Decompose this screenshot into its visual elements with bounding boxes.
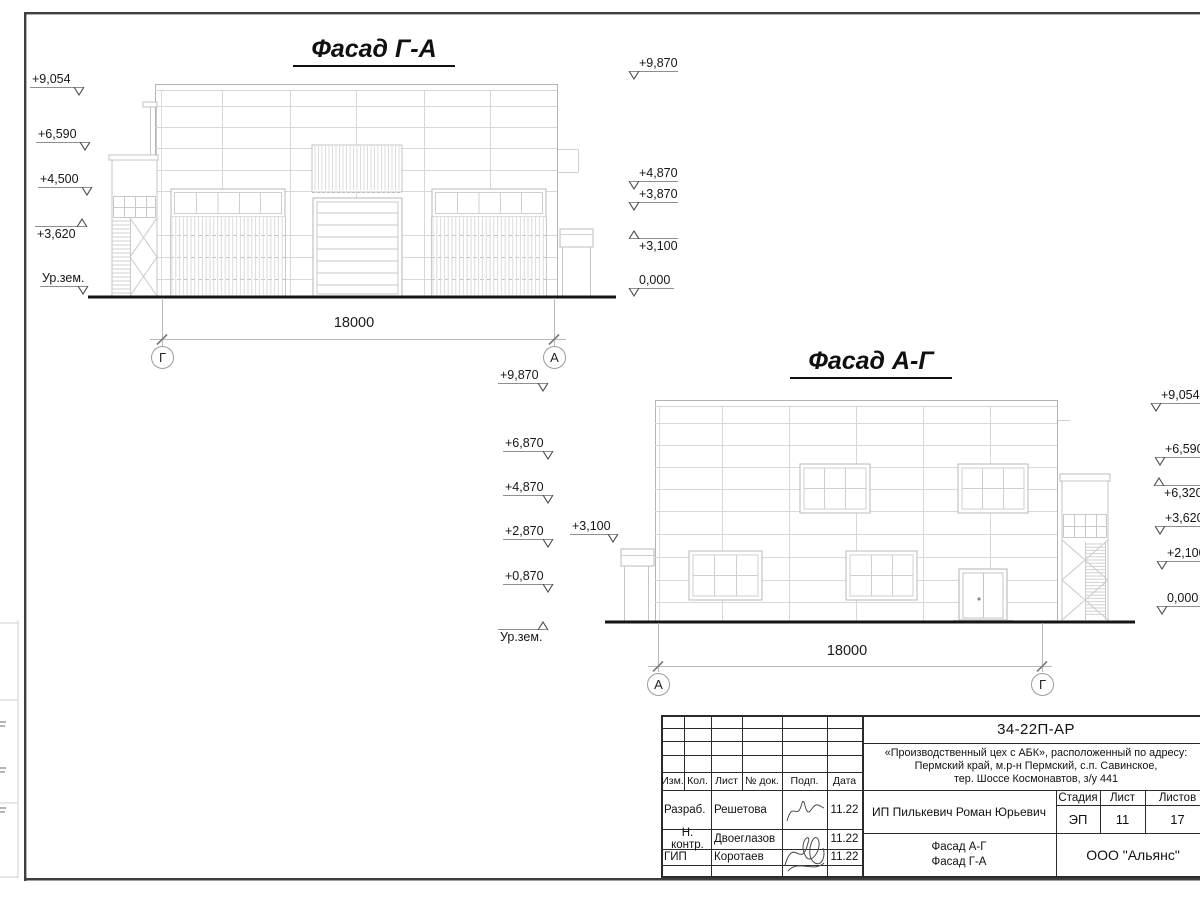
title-block: Изм. Кол. Лист № док. Подп. Дата Разраб.…: [661, 715, 1200, 878]
elevation-arrow-icon: [79, 142, 91, 151]
drawing-sheet: Фасад Г-А Фасад А-Г 18000 18000 Г А А Г …: [0, 0, 1200, 900]
elevation-arrow-icon: [73, 87, 85, 96]
elevation-mark: Ур.зем.: [40, 271, 88, 287]
col-header-list: Лист: [711, 772, 742, 790]
elevation-value: +6,320: [1155, 486, 1200, 500]
elevation-arrow-icon: [537, 621, 549, 630]
signature-scribble: [780, 829, 828, 875]
window-upper-2: [958, 464, 1028, 513]
elevation-arrow-icon: [76, 218, 88, 227]
facade-ag-drawing: [605, 401, 1135, 673]
ribbon-window-right: [432, 189, 546, 217]
elevation-value: +3,870: [630, 187, 678, 201]
company-name: ООО "Альянс": [1056, 833, 1200, 876]
elevation-mark: +4,870: [503, 480, 553, 496]
elevation-arrow-icon: [1154, 526, 1166, 535]
drawing-title-line: Фасад Г-А: [932, 855, 987, 870]
axis-bubble: А: [543, 346, 566, 369]
elevation-mark: +9,054: [1152, 388, 1200, 404]
elevation-value: +6,590: [36, 127, 90, 141]
elevation-value: +4,870: [630, 166, 678, 180]
elevation-arrow-icon: [628, 202, 640, 211]
elevation-value: +9,054: [1152, 388, 1200, 402]
stage-label: Стадия: [1056, 790, 1100, 805]
row-date: 11.22: [827, 849, 862, 865]
elevation-mark: +2,100: [1158, 546, 1200, 562]
margin-table-fragment: [0, 620, 18, 878]
elevation-mark: +2,870: [503, 524, 553, 540]
sheets-total: 17: [1145, 805, 1200, 833]
elevation-mark: +6,870: [503, 436, 553, 452]
elevation-mark: +0,870: [503, 569, 553, 585]
facade1-title: Фасад Г-А: [293, 35, 455, 67]
row-role: Разраб.: [664, 790, 711, 829]
elevation-value: 0,000: [1158, 591, 1200, 605]
sheet-label: Лист: [1100, 790, 1145, 805]
elevation-mark: +3,100: [570, 519, 618, 535]
elevation-arrow-icon: [1154, 457, 1166, 466]
elevation-arrow-icon: [542, 451, 554, 460]
col-header-izm: Изм.: [661, 772, 684, 790]
elevation-arrow-icon: [1153, 477, 1165, 486]
canopy-left: [621, 549, 654, 621]
elevation-value: +2,100: [1158, 546, 1200, 560]
elevation-value: +9,054: [30, 72, 84, 86]
project-description: «Производственный цех с АБК», расположен…: [862, 743, 1200, 790]
elevation-mark: +4,500: [38, 172, 92, 188]
row-role: Н. контр.: [664, 829, 711, 849]
elevation-value: +6,590: [1156, 442, 1200, 456]
elevation-value: +4,870: [503, 480, 553, 494]
doc-code: 34-22П-АР: [862, 715, 1200, 743]
row-name: Двоеглазов: [714, 829, 782, 849]
elevation-arrow-icon: [628, 288, 640, 297]
elevation-value: Ур.зем.: [498, 630, 548, 644]
window-lower-1: [689, 551, 762, 600]
elevation-arrow-icon: [81, 187, 93, 196]
project-line: Пермский край, м.р-н Пермский, с.п. Сави…: [915, 760, 1158, 773]
entrance-door: [953, 569, 1013, 621]
signature-scribble: [783, 793, 826, 826]
elevation-arrow-icon: [542, 495, 554, 504]
elevation-mark: +9,870: [498, 368, 548, 384]
elevation-value: +3,620: [35, 227, 87, 241]
stage-value: ЭП: [1056, 805, 1100, 833]
facade-ga-drawing: [88, 85, 616, 349]
elevation-mark: +6,590: [36, 127, 90, 143]
elevation-mark: 0,000: [1158, 591, 1200, 607]
project-line: «Производственный цех с АБК», расположен…: [885, 747, 1188, 760]
elevation-mark: +3,620: [35, 226, 87, 242]
axis-bubble: Г: [151, 346, 174, 369]
elevation-mark: +3,100: [630, 238, 678, 254]
elevation-arrow-icon: [542, 539, 554, 548]
elevation-arrow-icon: [1156, 561, 1168, 570]
canopy-right: [558, 150, 593, 297]
row-date: 11.22: [827, 790, 862, 829]
dimension-value-f1: 18000: [314, 315, 394, 331]
facade2-title: Фасад А-Г: [790, 347, 952, 379]
elevation-mark: 0,000: [630, 273, 674, 289]
elevation-value: +9,870: [630, 56, 678, 70]
elevation-value: +6,870: [503, 436, 553, 450]
row-date: 11.22: [827, 829, 862, 849]
elevation-arrow-icon: [628, 71, 640, 80]
elevation-value: +3,100: [630, 239, 678, 253]
axis-bubble: А: [647, 673, 670, 696]
elevation-mark: +3,620: [1156, 511, 1200, 527]
elevation-arrow-icon: [1150, 403, 1162, 412]
elevation-value: +2,870: [503, 524, 553, 538]
col-header-data: Дата: [827, 772, 862, 790]
sheets-label: Листов: [1145, 790, 1200, 805]
sheet-number: 11: [1100, 805, 1145, 833]
window-lower-2: [846, 551, 917, 600]
elevation-arrow-icon: [542, 584, 554, 593]
elevation-value: 0,000: [630, 273, 674, 287]
elevation-arrow-icon: [607, 534, 619, 543]
dimension-value-f2: 18000: [807, 643, 887, 659]
window-upper-1: [800, 464, 870, 513]
drawing-title-line: Фасад А-Г: [932, 840, 987, 855]
elevation-mark: +3,870: [630, 187, 678, 203]
row-name: Решетова: [714, 790, 782, 829]
project-line: тер. Шоссе Космонавтов, з/у 441: [954, 773, 1118, 786]
elevation-value: +3,100: [570, 519, 618, 533]
row-role: ГИП: [664, 849, 711, 865]
elevation-mark: +9,870: [630, 56, 678, 72]
elevation-mark: +4,870: [630, 166, 678, 182]
stair-tower-left: [109, 102, 158, 297]
elevation-arrow-icon: [77, 286, 89, 295]
elevation-mark: +9,054: [30, 72, 84, 88]
col-header-kol: Кол.: [684, 772, 711, 790]
elevation-mark: Ур.зем.: [498, 629, 548, 645]
ribbon-window-left: [171, 189, 285, 217]
elevation-mark: +6,320: [1155, 485, 1200, 501]
elevation-mark: +6,590: [1156, 442, 1200, 458]
elevation-value: +0,870: [503, 569, 553, 583]
col-header-doc: № док.: [742, 772, 782, 790]
client-name: ИП Пилькевич Роман Юрьевич: [862, 790, 1056, 833]
elevation-arrow-icon: [1156, 606, 1168, 615]
elevation-value: +9,870: [498, 368, 548, 382]
elevation-arrow-icon: [628, 230, 640, 239]
elevation-arrow-icon: [537, 383, 549, 392]
row-name: Коротаев: [714, 849, 782, 865]
elevation-value: +3,620: [1156, 511, 1200, 525]
elevation-value: Ур.зем.: [40, 271, 88, 285]
axis-bubble: Г: [1031, 673, 1054, 696]
col-header-podp: Подп.: [782, 772, 827, 790]
elevation-value: +4,500: [38, 172, 92, 186]
drawing-title: Фасад А-Г Фасад Г-А: [862, 833, 1056, 876]
